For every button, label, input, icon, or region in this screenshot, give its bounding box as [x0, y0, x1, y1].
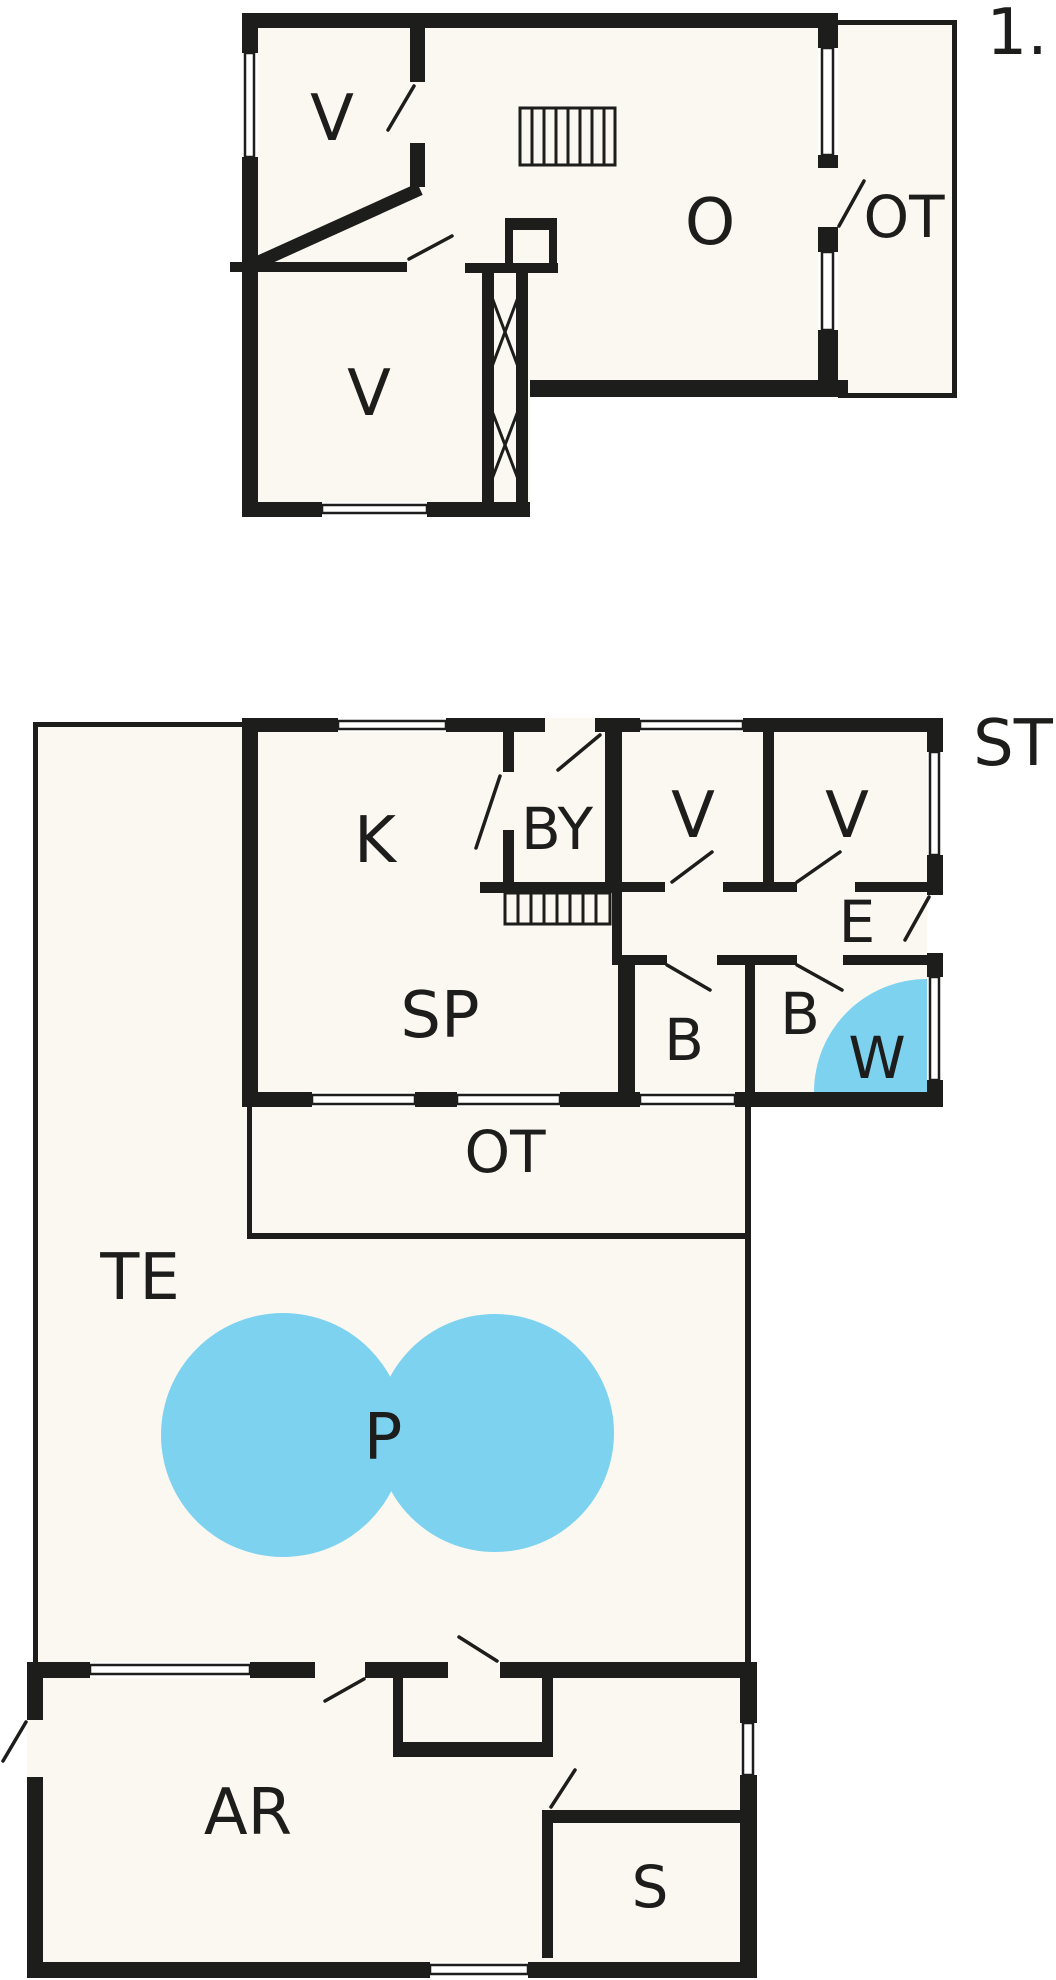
- ground-floor-stair: [505, 893, 610, 924]
- room-label-te: TE: [99, 1241, 180, 1315]
- room-label-s: S: [632, 1853, 669, 1921]
- floor-plan-page: 1. V V O OT K BY V V ST E SP B B W OT TE…: [0, 0, 1056, 1980]
- room-label-p: P: [364, 1401, 403, 1475]
- room-label-upper-o: O: [685, 186, 735, 260]
- room-label-upper-ot: OT: [863, 183, 945, 251]
- room-label-e: E: [839, 888, 876, 956]
- room-label-st: ST: [973, 707, 1054, 781]
- room-label-sp: SP: [400, 979, 479, 1053]
- room-label-by: BY: [521, 795, 594, 863]
- pool-right-lobe: [376, 1314, 614, 1552]
- room-label-b2: B: [780, 980, 820, 1048]
- room-label-v2: V: [825, 779, 869, 853]
- room-label-b1: B: [664, 1006, 704, 1074]
- room-label-upper-v1: V: [310, 82, 354, 156]
- room-label-v1: V: [671, 779, 715, 853]
- room-label-ot: OT: [464, 1118, 546, 1186]
- floor-plan-drawing: 1. V V O OT K BY V V ST E SP B B W OT TE…: [0, 0, 1056, 1980]
- room-label-ar: AR: [204, 1776, 292, 1850]
- upper-floor-door-gaps: [818, 168, 838, 227]
- upper-grille: [520, 108, 615, 165]
- room-label-w: W: [848, 1024, 905, 1092]
- room-label-k: K: [354, 804, 398, 878]
- room-label-upper-v2: V: [347, 357, 391, 431]
- floor-number-label: 1.: [986, 0, 1047, 70]
